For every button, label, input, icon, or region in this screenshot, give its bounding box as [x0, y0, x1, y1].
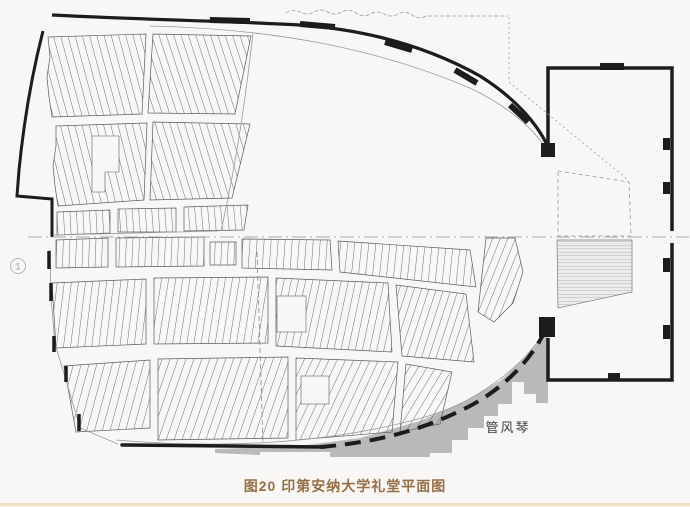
wall-pilaster: [663, 138, 670, 150]
seating-block: [116, 237, 204, 267]
wall-junction-blob: [539, 317, 555, 337]
seating-block: [148, 34, 251, 114]
stage-floor-hatch: [557, 240, 632, 308]
figure-caption: 图20 印第安纳大学礼堂平面图: [0, 476, 690, 496]
wall-pilaster: [663, 258, 670, 272]
balcony-seating: [47, 33, 253, 235]
floor-plan-drawing: 1 管风琴: [0, 0, 690, 470]
seating-block: [52, 279, 146, 348]
seating-block: [184, 205, 248, 231]
seating-block: [47, 34, 146, 117]
wall-pilaster: [600, 63, 624, 70]
wall-jog: [210, 20, 250, 21]
seating-block: [64, 360, 150, 432]
side-rows-band: [478, 238, 523, 322]
wall-pilaster: [663, 325, 670, 339]
seating-block: [210, 242, 236, 265]
seating-notch: [277, 296, 306, 332]
wall-pilaster: [608, 373, 620, 380]
wall-jog: [300, 24, 335, 27]
wall-jog: [385, 42, 412, 50]
seating-block: [158, 357, 288, 440]
left-wall: [17, 31, 52, 237]
page-bottom-border: [0, 503, 690, 506]
seating-block: [154, 277, 268, 344]
seating-block: [338, 241, 476, 287]
section-marker-number: 1: [15, 262, 20, 272]
seating-block: [56, 238, 108, 268]
seating-block: [118, 208, 176, 232]
front-wall-solid: [122, 445, 325, 447]
figure-page: 1 管风琴 图20 印第安纳大学礼堂平面图: [0, 0, 690, 507]
roof-outline-squiggle: [286, 10, 508, 18]
stage-house-walls: [548, 68, 672, 380]
stage: [557, 171, 632, 308]
organ-label: 管风琴: [485, 420, 530, 435]
roof-outline-dotted: [509, 17, 627, 179]
wall-junction-blob: [541, 143, 555, 157]
seating-block: [242, 239, 332, 270]
wall-pilaster: [663, 182, 670, 194]
seating-block: [396, 285, 474, 362]
seating-block: [57, 210, 110, 235]
stage-opening-dashed: [558, 171, 631, 236]
seating-notch: [301, 376, 329, 404]
